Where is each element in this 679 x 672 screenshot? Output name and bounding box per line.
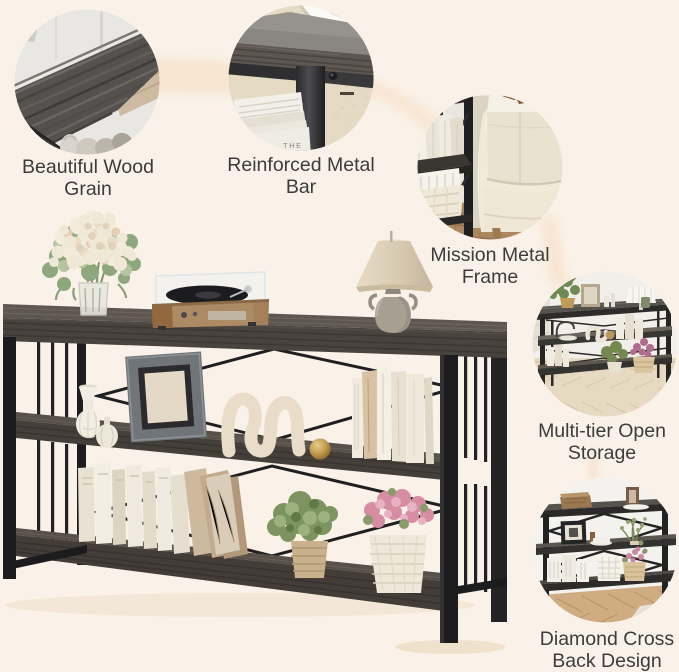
- svg-text:Bar: Bar: [286, 176, 317, 198]
- svg-text:Grain: Grain: [64, 178, 112, 200]
- svg-text:Mission Metal: Mission Metal: [430, 244, 549, 266]
- svg-text:Back Design: Back Design: [552, 650, 661, 672]
- svg-text:Diamond Cross: Diamond Cross: [540, 628, 675, 650]
- svg-text:Storage: Storage: [568, 442, 636, 464]
- svg-text:Frame: Frame: [462, 266, 518, 288]
- svg-text:Multi-tier Open: Multi-tier Open: [538, 420, 666, 442]
- svg-text:Reinforced Metal: Reinforced Metal: [227, 154, 374, 176]
- svg-text:Beautiful Wood: Beautiful Wood: [22, 156, 154, 178]
